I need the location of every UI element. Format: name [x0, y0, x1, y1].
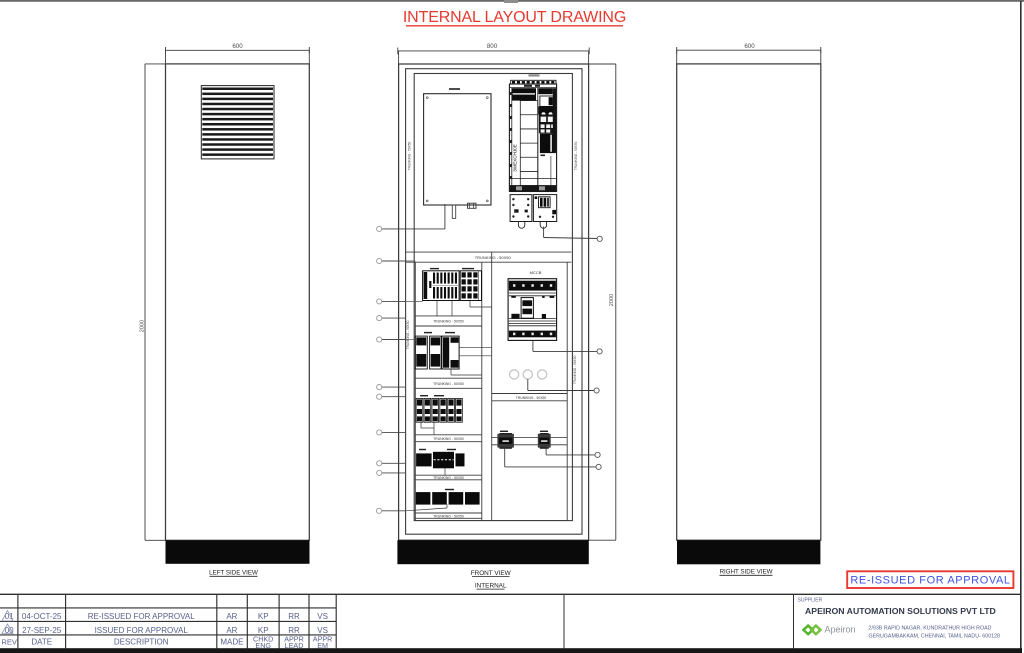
svg-text:ISSUED FOR APPROVAL: ISSUED FOR APPROVAL — [95, 626, 189, 635]
svg-text:DATE: DATE — [31, 637, 52, 646]
svg-text:REV: REV — [1, 637, 18, 646]
svg-text:RR: RR — [288, 612, 300, 621]
svg-text:27-SEP-25: 27-SEP-25 — [22, 626, 62, 635]
svg-text:TRUNKING - 50X50: TRUNKING - 50X50 — [406, 320, 410, 349]
svg-text:INTERNAL LAYOUT DRAWING: INTERNAL LAYOUT DRAWING — [403, 9, 626, 26]
svg-text:SUPPLIER: SUPPLIER — [798, 598, 823, 604]
svg-text:2000: 2000 — [140, 320, 146, 332]
svg-text:LEFT SIDE VIEW: LEFT SIDE VIEW — [209, 570, 258, 577]
svg-text:TRUNKING - 50X50: TRUNKING - 50X50 — [475, 255, 512, 260]
svg-text:RE-ISSUED FOR APPROVAL: RE-ISSUED FOR APPROVAL — [88, 612, 196, 621]
svg-text:AR: AR — [226, 626, 237, 635]
svg-text:Apeiron: Apeiron — [825, 625, 856, 635]
svg-text:DESCRIPTION: DESCRIPTION — [114, 637, 169, 646]
svg-text:TRUNKING - 50X50: TRUNKING - 50X50 — [433, 437, 464, 441]
svg-text:ENG: ENG — [255, 641, 271, 650]
svg-text:VS: VS — [317, 612, 328, 621]
svg-text:2000: 2000 — [609, 294, 615, 306]
svg-text:INTERNAL: INTERNAL — [475, 582, 507, 589]
svg-text:APEIRON AUTOMATION SOLUTIONS P: APEIRON AUTOMATION SOLUTIONS PVT LTD — [805, 606, 996, 616]
svg-text:GERUGAMBAKKAM, CHENNAI, TAMI: GERUGAMBAKKAM, CHENNAI, TAMIL NADU- 6001… — [869, 633, 1001, 639]
svg-text:KP: KP — [258, 612, 269, 621]
svg-text:LEAD: LEAD — [285, 641, 304, 650]
svg-text:TRUNKING - 50X50: TRUNKING - 50X50 — [433, 382, 464, 386]
svg-text:600: 600 — [744, 43, 755, 50]
svg-text:2/93B RAPID NAGAR, KUNDRATH: 2/93B RAPID NAGAR, KUNDRATHUR HIGH ROAD — [869, 625, 992, 631]
svg-text:FRONT VIEW: FRONT VIEW — [471, 570, 512, 577]
svg-text:3WEXCHJ0E: 3WEXCHJ0E — [512, 144, 517, 172]
svg-text:04-OCT-25: 04-OCT-25 — [22, 612, 62, 621]
svg-text:KP: KP — [258, 626, 269, 635]
svg-text:AR: AR — [226, 612, 237, 621]
svg-text:RE-ISSUED FOR APPROVAL: RE-ISSUED FOR APPROVAL — [850, 575, 1010, 587]
svg-text:MCCB: MCCB — [530, 270, 542, 275]
svg-text:MADE: MADE — [220, 637, 243, 646]
svg-text:800: 800 — [487, 43, 498, 50]
svg-text:RR: RR — [288, 626, 300, 635]
svg-text:600: 600 — [232, 43, 243, 50]
svg-text:TRUNKING - 50X50: TRUNKING - 50X50 — [573, 355, 577, 384]
svg-text:TRUNKING - 50X50: TRUNKING - 50X50 — [407, 141, 411, 170]
svg-text:TRUNKING - 50X50: TRUNKING - 50X50 — [433, 320, 464, 324]
svg-text:TRUNKING - 50X50: TRUNKING - 50X50 — [433, 514, 464, 518]
svg-text:VS: VS — [317, 626, 328, 635]
svg-text:TRUNKING - 50X50: TRUNKING - 50X50 — [574, 141, 578, 170]
svg-text:RIGHT SIDE VIEW: RIGHT SIDE VIEW — [720, 569, 773, 576]
svg-text:EM: EM — [317, 641, 328, 650]
svg-text:TRUNKING - 50X50: TRUNKING - 50X50 — [433, 476, 464, 480]
svg-text:TRUNKING - 50X50: TRUNKING - 50X50 — [516, 396, 547, 400]
